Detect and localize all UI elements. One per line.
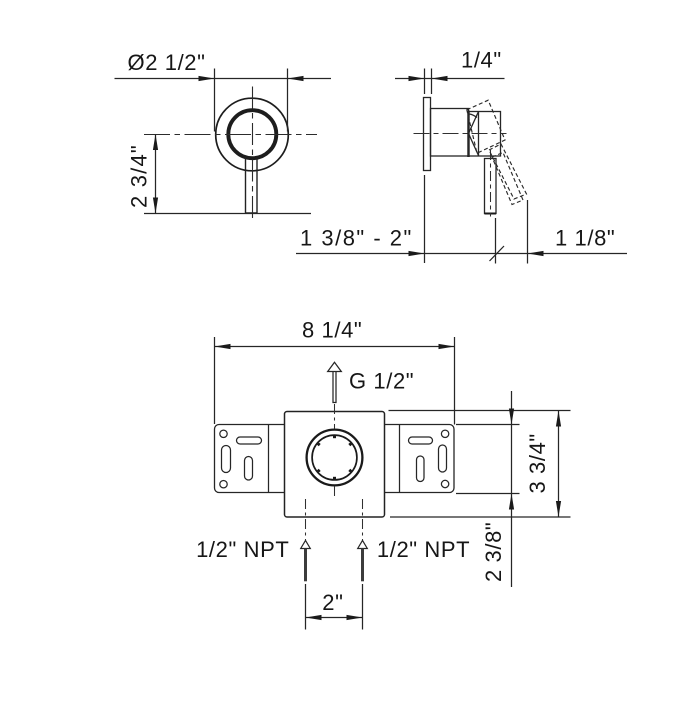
svg-text:G 1/2": G 1/2" [349, 368, 414, 393]
svg-text:2 3/4": 2 3/4" [127, 144, 152, 208]
svg-text:3 3/4": 3 3/4" [525, 433, 550, 493]
svg-text:1/4": 1/4" [461, 48, 502, 73]
svg-text:8 1/4": 8 1/4" [302, 318, 362, 343]
svg-text:1/2" NPT: 1/2" NPT [196, 537, 289, 562]
svg-text:2 3/8": 2 3/8" [481, 522, 506, 582]
svg-text:1/2" NPT: 1/2" NPT [377, 537, 470, 562]
svg-text:Ø2 1/2": Ø2 1/2" [128, 50, 206, 75]
svg-text:2": 2" [322, 590, 343, 615]
svg-text:1 1/8": 1 1/8" [555, 226, 615, 251]
svg-text:1 3/8" - 2": 1 3/8" - 2" [300, 226, 413, 251]
